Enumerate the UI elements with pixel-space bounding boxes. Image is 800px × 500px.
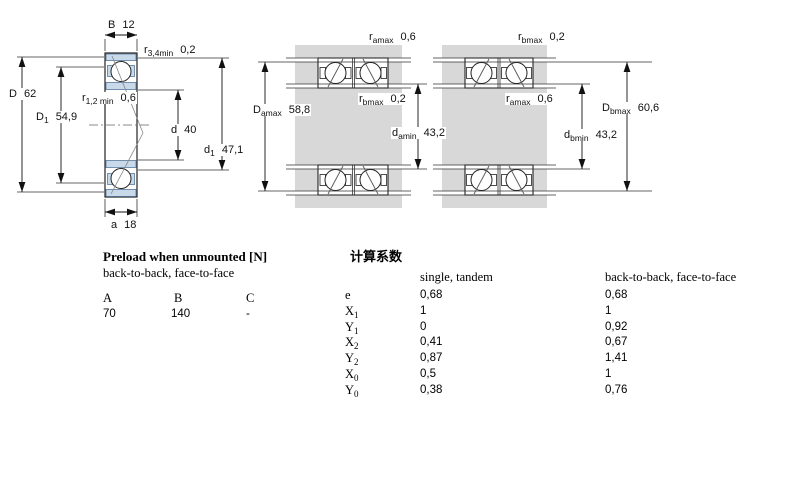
dim-label-Damax: Damax58,8 [252,104,311,116]
dim-label-d1: d147,1 [203,144,244,156]
factor-single-value: 1 [420,305,426,317]
factor-paired-value: 0,92 [605,321,627,333]
factor-row-label: e [345,288,351,302]
dim-label-rbmax-f2f: rbmax0,2 [517,31,566,43]
factors-title: 计算系数 [350,250,402,265]
dim-label-r34min: r3,4min0,2 [143,44,196,56]
dim-label-damin: damin43,2 [391,127,446,139]
factor-row-label: Y1 [345,320,359,334]
dim-label-d: d40 [170,124,197,136]
factor-row-label: Y0 [345,383,359,397]
dim-label-a: a18 [110,219,137,231]
factor-single-value: 0,5 [420,368,436,380]
preload-col-C: C [246,291,254,305]
dim-label-D: D62 [8,88,37,100]
factor-row-label: X0 [345,367,359,381]
bearing-ball [111,169,131,189]
factor-single-value: 0,87 [420,352,442,364]
preload-title: Preload when unmounted [N] [103,250,267,265]
dim-label-Dbmax: Dbmax60,6 [601,102,660,114]
preload-value-A: 70 [103,308,116,320]
factor-paired-value: 0,68 [605,289,627,301]
factor-row-label: X2 [345,335,359,349]
dim-label-rbmax-b2b: rbmax0,2 [358,93,407,105]
dim-label-dbmin: dbmin43,2 [563,129,618,141]
factor-paired-value: 1 [605,305,611,317]
bearing-datasheet-page: B12 r3,4min0,2 D62 D154,9 r1,2 min0,6 d4… [0,0,800,500]
preload-subtitle: back-to-back, face-to-face [103,266,234,280]
preload-col-B: B [174,291,182,305]
preload-value-B: 140 [171,308,190,320]
dim-label-ramax-f2f: ramax0,6 [505,93,554,105]
factor-row-label: Y2 [345,351,359,365]
face-to-face-pair-drawing [433,45,652,208]
dim-label-r12min: r1,2 min0,6 [81,92,137,104]
dim-label-ramax-b2b: ramax0,6 [368,31,417,43]
dimension-lines [582,62,627,191]
dim-label-B: B12 [107,19,136,31]
factor-paired-value: 0,67 [605,336,627,348]
factor-single-value: 0,41 [420,336,442,348]
factor-single-value: 0,38 [420,384,442,396]
factor-paired-value: 1 [605,368,611,380]
factor-paired-value: 0,76 [605,384,627,396]
preload-value-C: - [246,308,250,320]
factor-single-value: 0,68 [420,289,442,301]
factor-paired-value: 1,41 [605,352,627,364]
factor-row-label: X1 [345,304,359,318]
dim-label-D1: D154,9 [35,111,78,123]
factors-col-single-header: single, tandem [420,270,493,284]
factors-col-paired-header: back-to-back, face-to-face [605,270,736,284]
factor-single-value: 0 [420,321,426,333]
preload-col-A: A [103,291,112,305]
